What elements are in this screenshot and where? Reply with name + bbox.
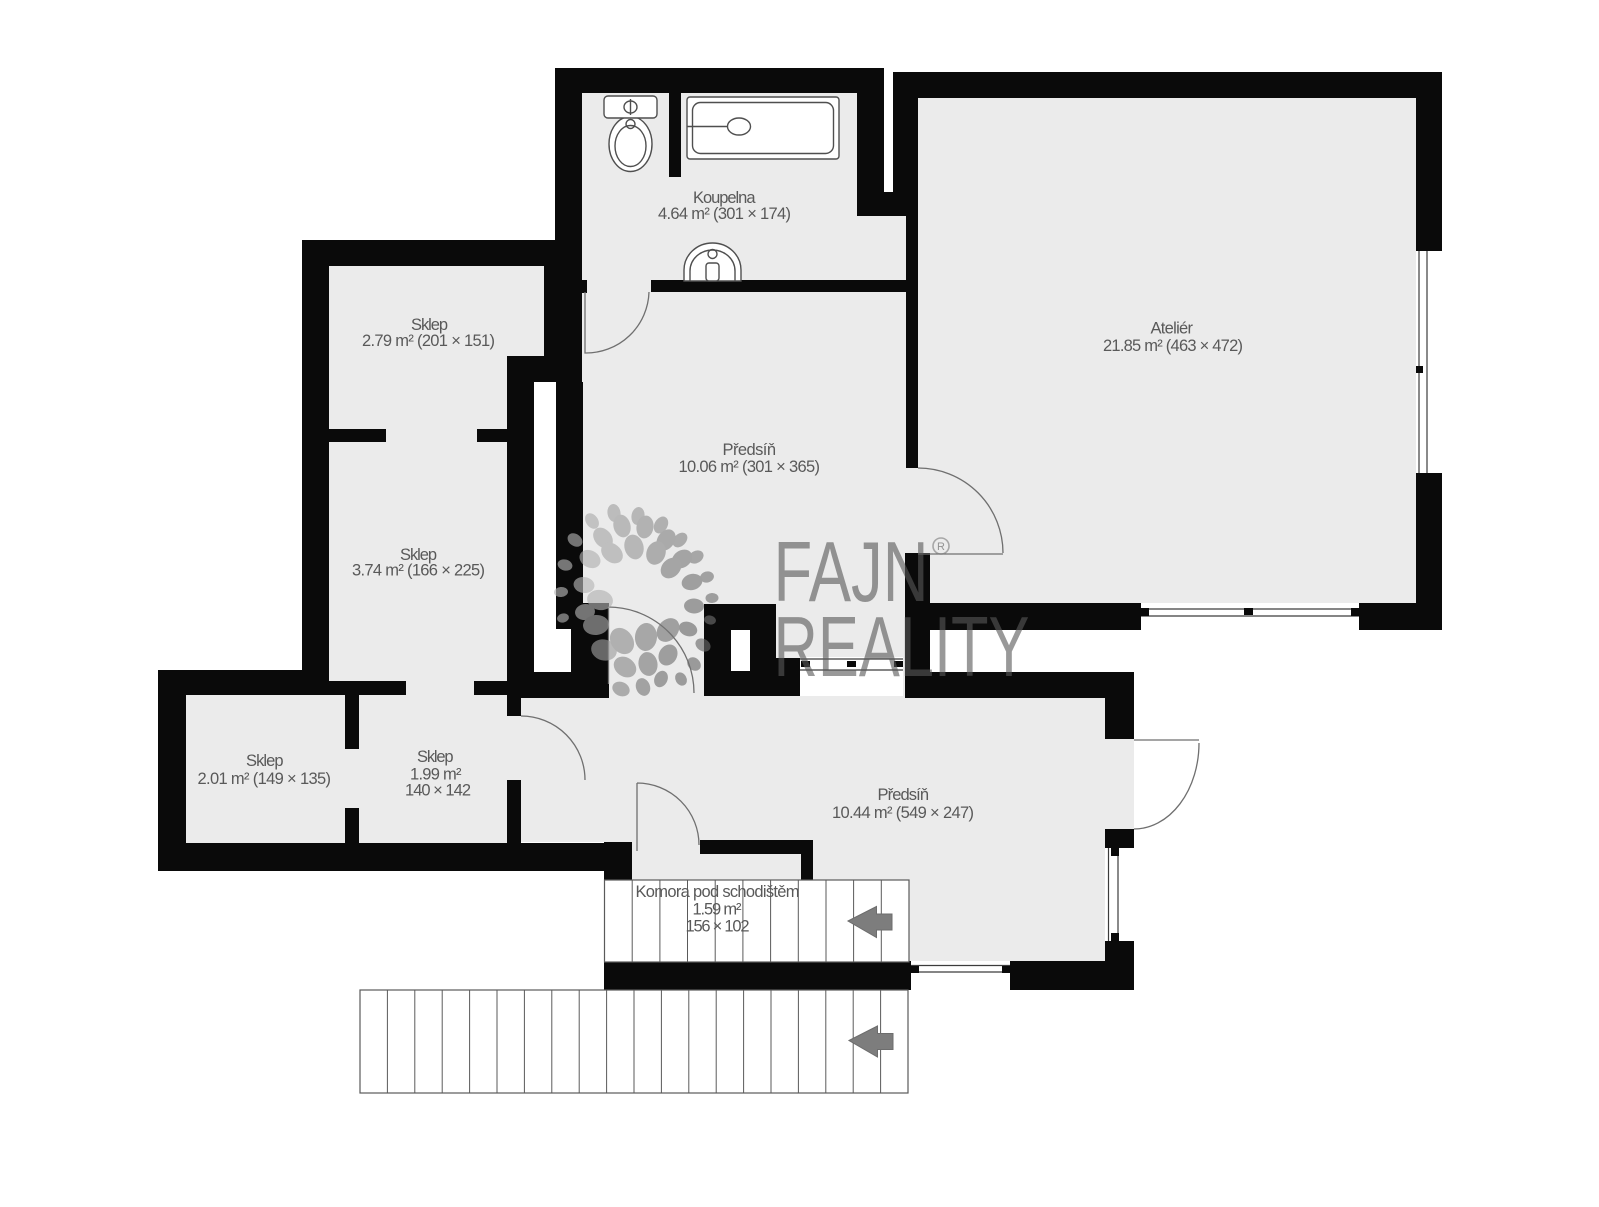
svg-text:Předsíň: Předsíň [723,441,777,459]
svg-text:140 × 142: 140 × 142 [405,782,471,800]
svg-text:R: R [937,541,945,553]
svg-text:1.59 m²: 1.59 m² [693,901,743,919]
svg-text:Ateliér: Ateliér [1151,320,1194,338]
svg-text:10.06 m² (301 × 365): 10.06 m² (301 × 365) [679,458,821,476]
svg-text:Předsíň: Předsíň [878,786,930,804]
svg-text:2.01 m² (149 × 135): 2.01 m² (149 × 135) [198,770,332,788]
svg-text:21.85 m² (463 × 472): 21.85 m² (463 × 472) [1103,337,1243,355]
svg-text:4.64 m² (301 × 174): 4.64 m² (301 × 174) [658,205,791,223]
svg-text:Sklep: Sklep [417,748,454,766]
svg-text:Komora pod schodištěm: Komora pod schodištěm [636,883,800,901]
svg-text:10.44 m² (549 × 247): 10.44 m² (549 × 247) [832,804,974,822]
svg-text:Sklep: Sklep [246,752,284,770]
svg-text:REALITY: REALITY [774,600,1030,695]
svg-text:156 × 102: 156 × 102 [686,918,750,936]
svg-text:2.79 m² (201 × 151): 2.79 m² (201 × 151) [362,332,495,350]
svg-text:3.74 m² (166 × 225): 3.74 m² (166 × 225) [352,562,485,580]
